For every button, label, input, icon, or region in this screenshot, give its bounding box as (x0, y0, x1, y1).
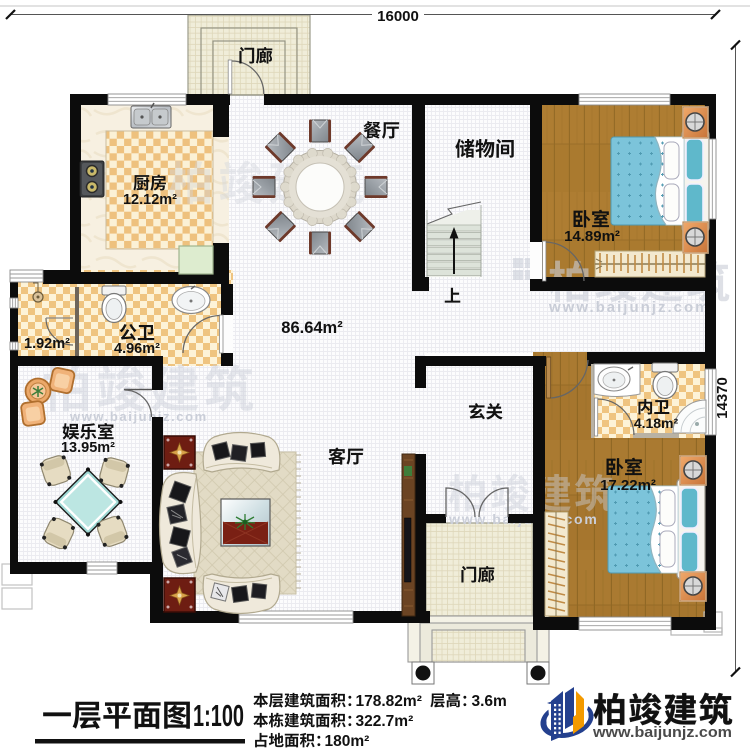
svg-text:12.12m²: 12.12m² (123, 192, 177, 208)
svg-text:86.64m²: 86.64m² (281, 319, 343, 337)
svg-text:1.92m²: 1.92m² (24, 336, 70, 352)
svg-text:17.22m²: 17.22m² (600, 477, 656, 494)
svg-text:www.baijunjz.com: www.baijunjz.com (69, 409, 208, 424)
svg-text:1:100: 1:100 (193, 698, 244, 733)
svg-text:322.7m²: 322.7m² (356, 713, 414, 730)
svg-text:14370: 14370 (714, 377, 731, 419)
svg-text:178.82m²: 178.82m² (356, 693, 422, 710)
svg-text:4.18m²: 4.18m² (634, 415, 679, 431)
svg-text:14.89m²: 14.89m² (564, 228, 620, 245)
svg-text:www.baijunjz.com: www.baijunjz.com (548, 299, 710, 316)
svg-text:180m²: 180m² (325, 733, 370, 750)
svg-text:13.95m²: 13.95m² (61, 440, 115, 456)
svg-text:3.6m: 3.6m (472, 693, 507, 710)
svg-text:www.baijunjz.com: www.baijunjz.com (592, 724, 732, 741)
svg-text:4.96m²: 4.96m² (114, 341, 160, 357)
svg-text:16000: 16000 (377, 8, 419, 25)
